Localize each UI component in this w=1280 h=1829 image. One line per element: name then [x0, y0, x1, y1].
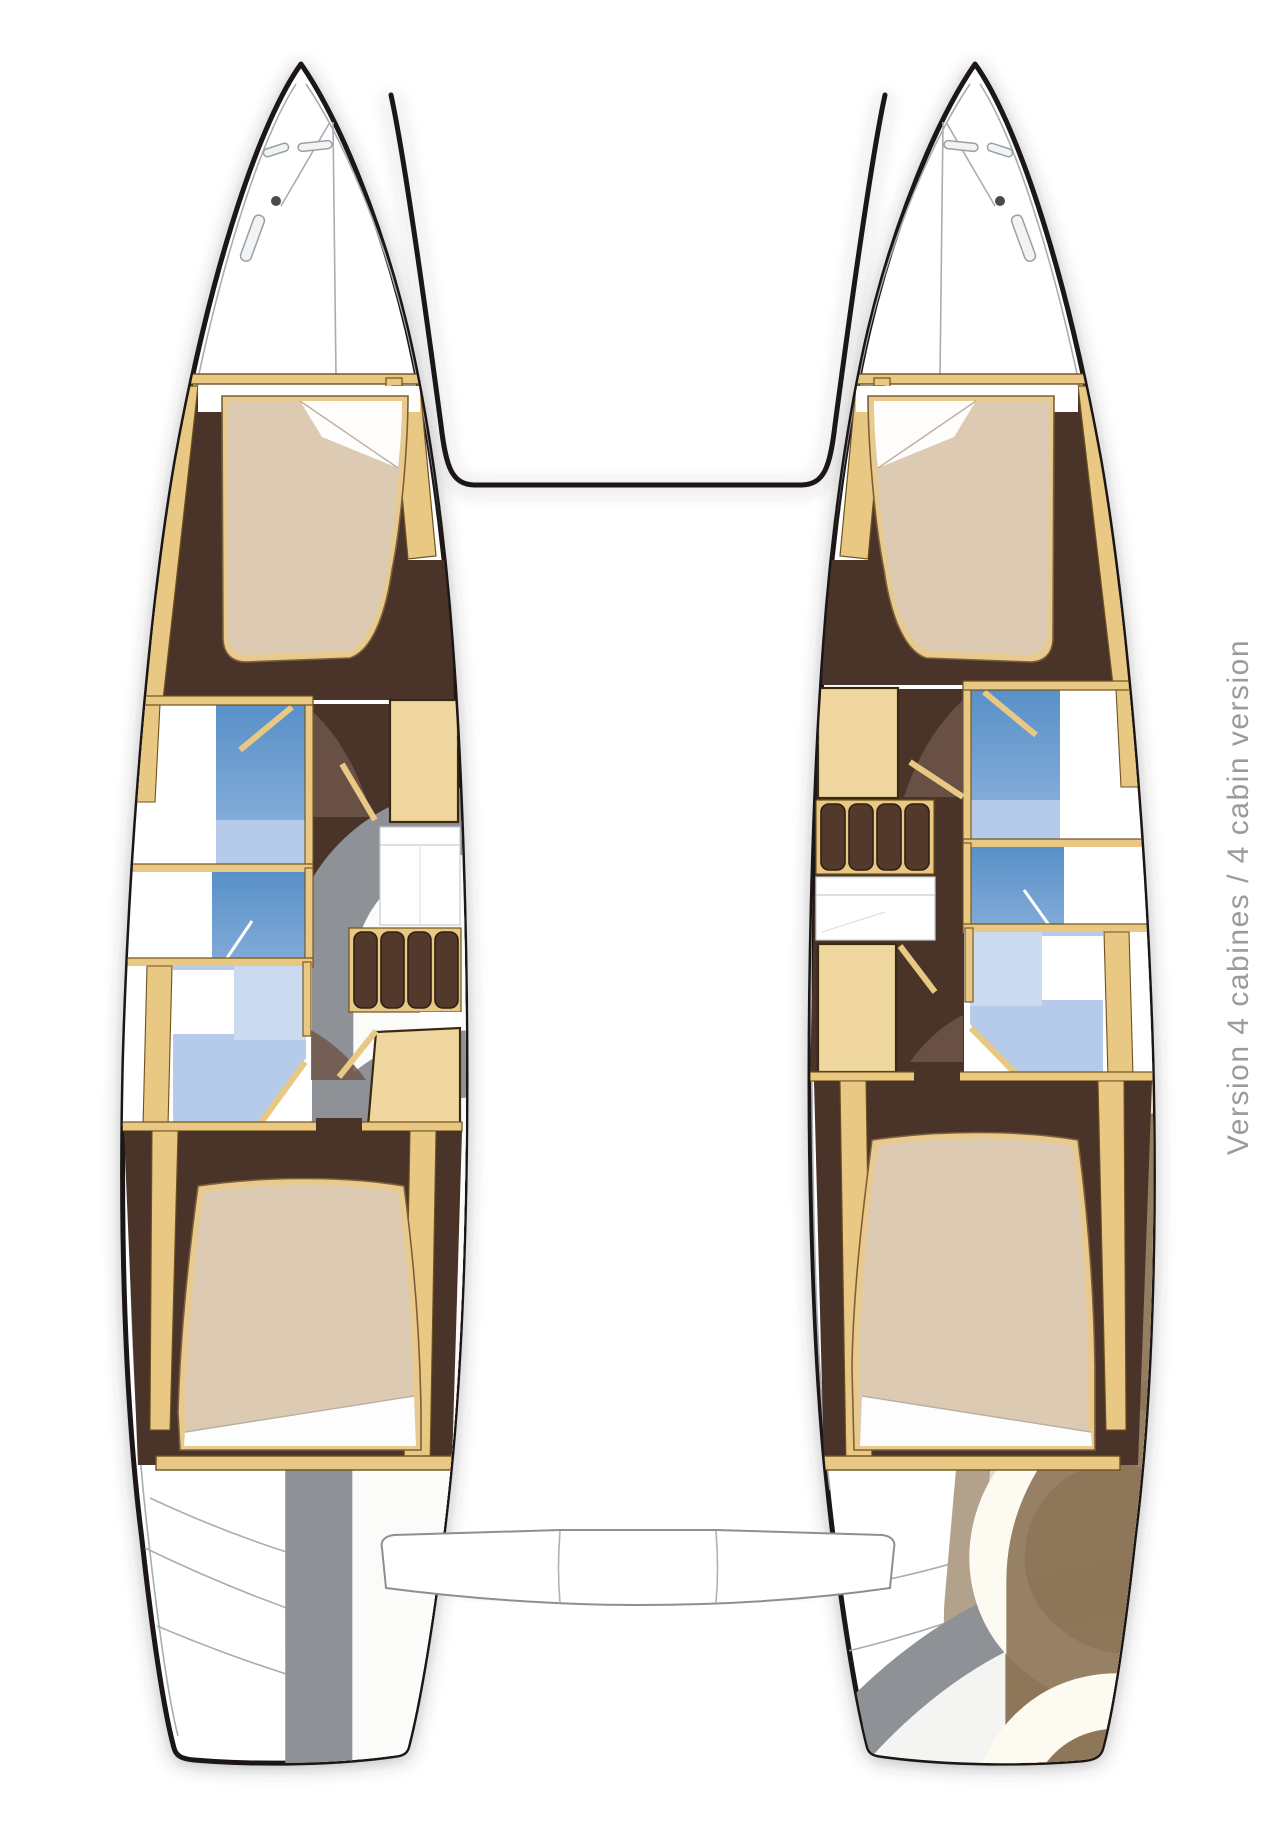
starboard-hanging-locker-aft — [818, 944, 896, 1072]
starboard-forward-bulkhead — [821, 374, 1111, 384]
port-companionway-steps — [349, 928, 461, 1012]
starboard-hanging-locker-fwd — [818, 688, 898, 798]
port-hanging-locker-aft — [368, 1028, 460, 1126]
catamaran-floorplan: Version 4 cabines / 4 cabin version — [0, 0, 1280, 1829]
version-caption: Version 4 cabines / 4 cabin version — [1222, 547, 1264, 1247]
bridge-deck-edge — [391, 95, 885, 485]
cockpit-bench — [382, 1530, 895, 1605]
floorplan-drawing — [0, 0, 1280, 1829]
starboard-companionway-steps — [816, 800, 934, 874]
port-forward-bulkhead — [165, 374, 455, 384]
starboard-counter — [816, 877, 935, 940]
pillow — [340, 1777, 1280, 1829]
port-hanging-locker-fwd — [390, 700, 458, 822]
pillow — [1031, 1794, 1280, 1829]
starboard-aft-mattress — [859, 1139, 1088, 1445]
